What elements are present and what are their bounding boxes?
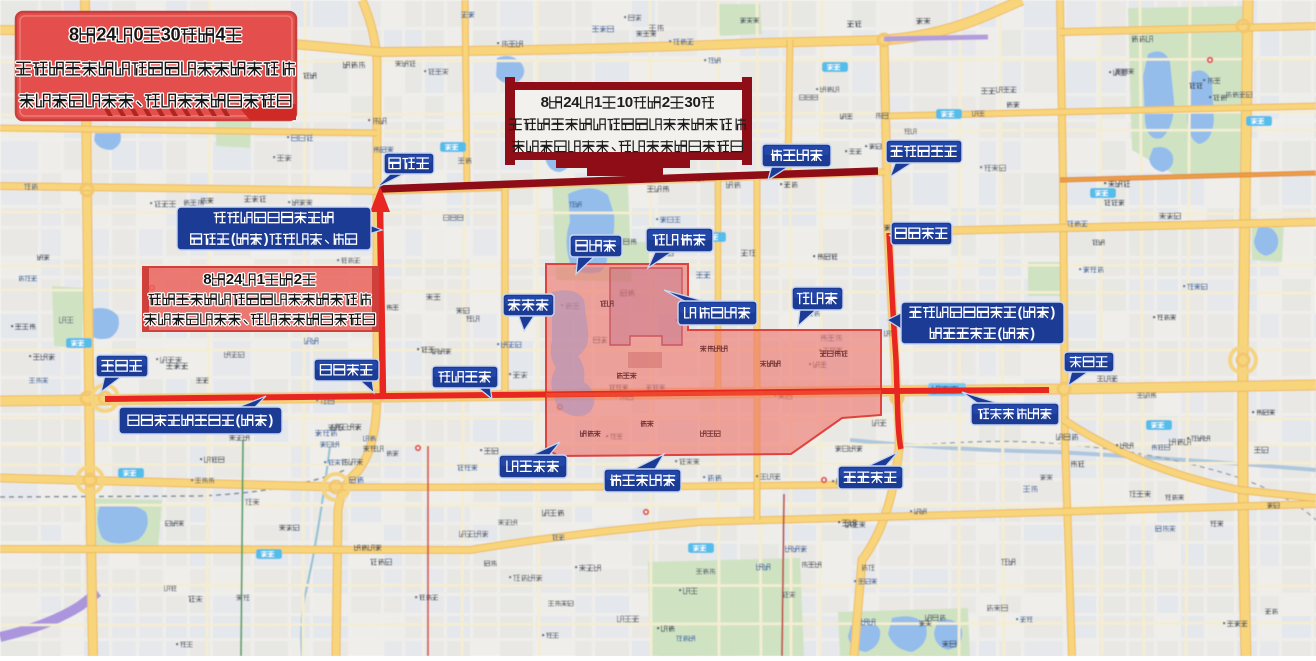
- svg-text:0: 0: [692, 94, 700, 111]
- svg-text:8: 8: [541, 94, 549, 111]
- svg-text:): ): [1051, 303, 1056, 319]
- svg-text:(: (: [997, 324, 1002, 340]
- svg-text:1: 1: [257, 271, 265, 288]
- svg-text:4: 4: [106, 24, 117, 44]
- svg-text:4: 4: [234, 271, 243, 288]
- svg-text:3: 3: [161, 24, 171, 44]
- svg-text:8: 8: [69, 24, 79, 44]
- svg-text:2: 2: [96, 24, 106, 44]
- svg-text:): ): [264, 230, 269, 246]
- svg-text:): ): [269, 411, 274, 427]
- svg-text:0: 0: [133, 24, 143, 44]
- svg-text:4: 4: [215, 24, 226, 44]
- svg-text:2: 2: [294, 271, 302, 288]
- svg-text:(: (: [231, 230, 236, 246]
- svg-text:1: 1: [594, 94, 602, 111]
- svg-text:): ): [1030, 324, 1035, 340]
- svg-text:0: 0: [625, 94, 633, 111]
- svg-text:(: (: [236, 411, 241, 427]
- svg-text:(: (: [1018, 303, 1023, 319]
- svg-text:4: 4: [571, 94, 580, 111]
- svg-text:2: 2: [662, 94, 670, 111]
- svg-text:0: 0: [171, 24, 181, 44]
- svg-text:8: 8: [203, 271, 211, 288]
